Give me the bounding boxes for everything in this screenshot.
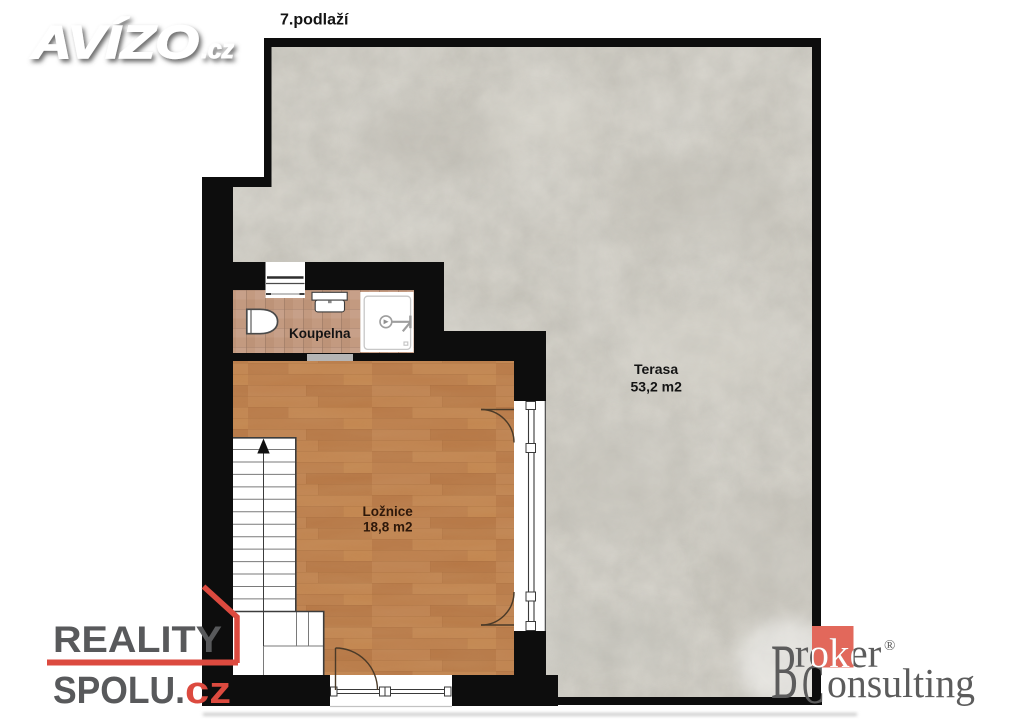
svg-text:53,2 m2: 53,2 m2 (631, 379, 683, 395)
svg-text:AVÍZO: AVÍZO (30, 16, 199, 68)
svg-text:.cz: .cz (201, 34, 234, 64)
svg-text:Koupelna: Koupelna (289, 326, 351, 341)
svg-text:SPOLU.: SPOLU. (53, 670, 185, 712)
svg-text:REALITY: REALITY (53, 619, 222, 660)
svg-text:®: ® (884, 638, 895, 654)
svg-text:cz: cz (185, 670, 231, 712)
svg-text:Terasa: Terasa (634, 361, 678, 377)
svg-text:18,8 m2: 18,8 m2 (363, 520, 413, 535)
svg-text:7.podlaží: 7.podlaží (280, 12, 349, 29)
svg-text:Ložnice: Ložnice (363, 504, 414, 519)
